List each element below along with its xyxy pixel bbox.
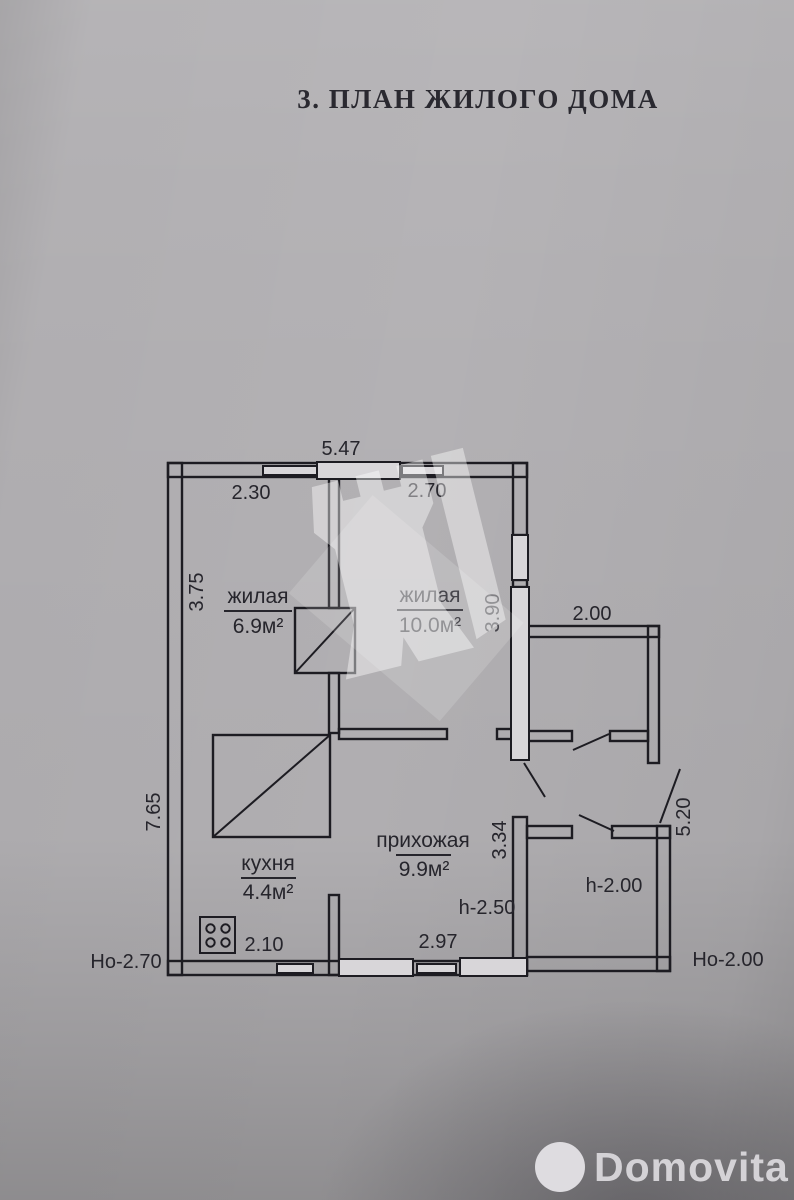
porch-lower-wall-top-left	[527, 826, 572, 838]
partition-living-rooms-lower	[329, 673, 339, 733]
porch-lower-wall-right	[657, 826, 670, 971]
outer-wall-right-lower	[513, 817, 527, 975]
room-area-hall: 9.9м²	[399, 858, 450, 881]
dimension-hall-width: 2.97	[419, 931, 458, 953]
porch-upper-wall-bottom-right	[610, 731, 648, 741]
outer-wall-right-pier	[513, 580, 527, 587]
domovita-logo: Domovita	[535, 1142, 789, 1192]
burner	[221, 924, 229, 932]
window	[263, 466, 317, 475]
burner	[221, 938, 229, 946]
porch-upper-wall-bottom-left	[527, 731, 572, 741]
dimension-house-width: 5.47	[322, 438, 361, 460]
burner	[206, 938, 214, 946]
dimension-hall-depth: 3.34	[489, 821, 511, 860]
door-swing-lower-porch	[579, 815, 614, 831]
domovita-logo-icon	[535, 1142, 585, 1192]
ceiling-height-porch: h-2.00	[586, 875, 643, 897]
dimension-living1-depth: 3.75	[186, 573, 208, 612]
outer-wall-right-upper	[513, 463, 527, 535]
burner	[206, 924, 214, 932]
stove-burners-icon	[200, 917, 235, 953]
dimension-living1-width: 2.30	[232, 482, 271, 504]
room-area-kitchen: 4.4м²	[243, 881, 294, 904]
door-swing-house-entrance	[524, 763, 545, 797]
ceiling-height-hall: h-2.50	[459, 897, 516, 919]
room-label-kitchen: кухня	[241, 852, 294, 875]
window	[277, 964, 313, 973]
partition-living2-hall	[339, 729, 447, 739]
porch-lower-wall-top-right	[612, 826, 670, 838]
dimension-kitchen-width: 2.10	[245, 934, 284, 956]
page-title: 3. ПЛАН ЖИЛОГО ДОМА	[297, 84, 659, 114]
window	[511, 587, 529, 760]
window	[460, 958, 527, 976]
furnace-diagonal	[213, 735, 330, 837]
room-label-living1: жилая	[227, 585, 288, 608]
partition-kitchen-hall-stub	[329, 895, 339, 975]
dimension-annex-right-depth: 5.20	[673, 798, 695, 837]
room-area-living1: 6.9м²	[233, 615, 284, 638]
dimension-porch-width: 2.00	[573, 603, 612, 625]
window	[339, 959, 413, 976]
domovita-logo-text: Domovita	[594, 1144, 789, 1190]
window	[512, 535, 528, 580]
porch-lower-wall-bottom	[527, 957, 670, 971]
window	[417, 964, 456, 973]
porch-upper-wall-right	[648, 626, 659, 763]
room-label-hall: прихожая	[376, 829, 470, 852]
outer-height-house: Но-2.70	[90, 951, 161, 973]
scanned-floor-plan-photo: 3. ПЛАН ЖИЛОГО ДОМА	[0, 0, 794, 1200]
porch-upper-wall-top	[527, 626, 659, 637]
door-swing-upper-porch	[573, 734, 609, 750]
furnace-symbol-large	[213, 735, 330, 837]
dimension-house-depth: 7.65	[143, 793, 165, 832]
outer-wall-left	[168, 463, 182, 975]
floor-plan-drawing: 3. ПЛАН ЖИЛОГО ДОМА	[0, 0, 794, 1200]
stove-outline	[200, 917, 235, 953]
outer-height-annex: Но-2.00	[692, 949, 763, 971]
